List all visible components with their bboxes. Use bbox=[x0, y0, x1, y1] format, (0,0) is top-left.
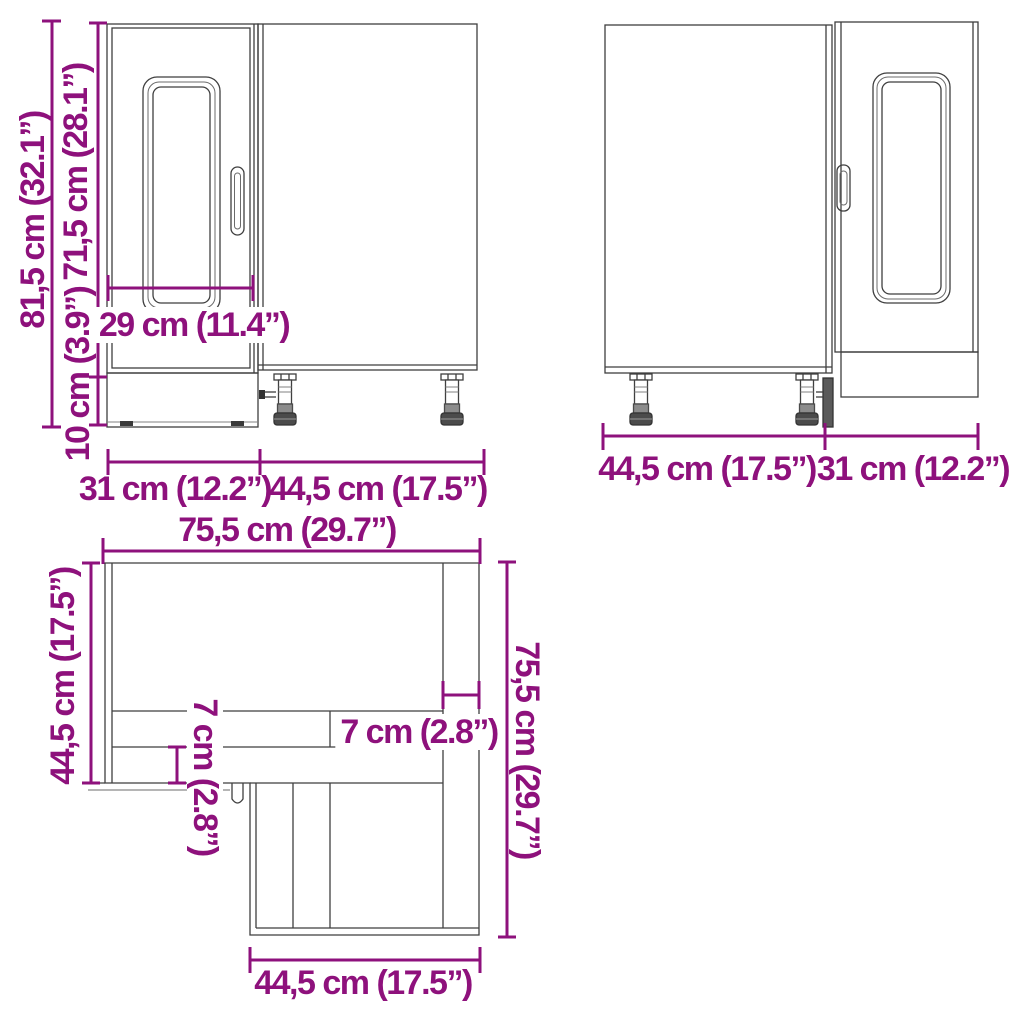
front-bottom-right-width-label: 44,5 cm (17.5”) bbox=[269, 472, 487, 506]
front-bottom-left-width-label: 31 cm (12.2”) bbox=[79, 472, 271, 506]
front-view bbox=[107, 24, 477, 427]
top-total-width-label: 75,5 cm (29.7”) bbox=[178, 513, 396, 547]
back-bottom-right-width-label: 31 cm (12.2”) bbox=[817, 452, 1009, 486]
top-bottom-width-label: 44,5 cm (17.5”) bbox=[254, 966, 472, 1000]
top-front-frame-width-label: 7 cm (2.8”) bbox=[335, 714, 502, 750]
leg-bracket-icon bbox=[816, 392, 823, 397]
handle-top-profile-icon bbox=[232, 783, 243, 803]
top-front-frame-depth-label: 7 cm (2.8”) bbox=[187, 693, 223, 860]
front-plinth-height-label: 10 cm (3.9”) bbox=[61, 287, 95, 462]
cabinet-dimension-diagram: 81,5 cm (32.1”) 71,5 cm (28.1”) 10 cm (3… bbox=[0, 0, 1024, 1024]
front-door-width-label: 29 cm (11.4”) bbox=[94, 307, 294, 343]
front-carcass-height-label: 71,5 cm (28.1”) bbox=[59, 63, 93, 281]
door-handle-icon bbox=[231, 167, 244, 235]
top-total-depth-label: 75,5 cm (29.7”) bbox=[510, 641, 544, 859]
door-handle-side-icon bbox=[837, 165, 850, 211]
front-total-height-label: 81,5 cm (32.1”) bbox=[16, 111, 50, 329]
top-left-depth-label: 44,5 cm (17.5”) bbox=[46, 567, 80, 785]
technical-drawing bbox=[0, 0, 1024, 1024]
back-bottom-left-width-label: 44,5 cm (17.5”) bbox=[598, 452, 816, 486]
back-view bbox=[605, 22, 978, 427]
leg-bracket-icon bbox=[259, 390, 276, 399]
